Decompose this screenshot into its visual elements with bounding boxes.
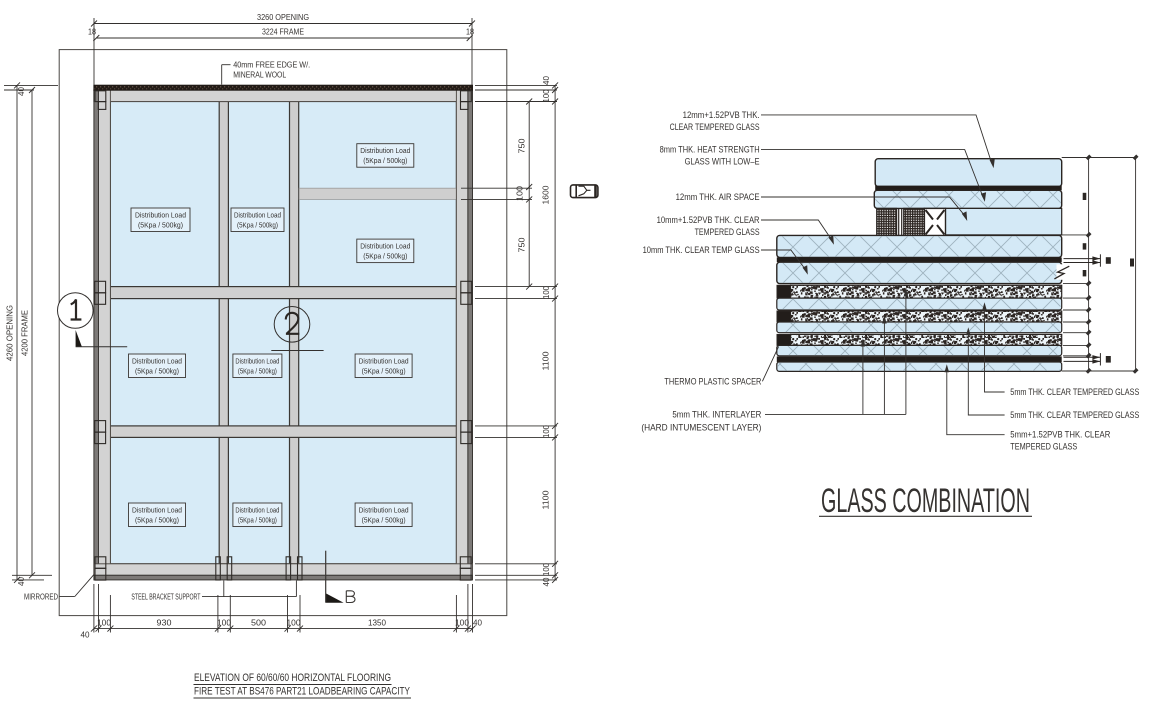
svg-text:5mm+1.52PVB THK. CLEAR: 5mm+1.52PVB THK. CLEAR <box>1010 430 1110 441</box>
svg-text:STEEL BRACKET SUPPORT: STEEL BRACKET SUPPORT <box>131 593 200 602</box>
svg-text:40: 40 <box>81 630 90 640</box>
svg-text:CLEAR TEMPERED GLASS: CLEAR TEMPERED GLASS <box>670 122 760 133</box>
svg-text:5mm THK. CLEAR TEMPERED GLASS: 5mm THK. CLEAR TEMPERED GLASS <box>1010 387 1139 398</box>
svg-text:(5Kpa / 500kg): (5Kpa / 500kg) <box>362 516 406 525</box>
svg-text:18: 18 <box>88 28 96 37</box>
svg-text:3224 FRAME: 3224 FRAME <box>262 27 304 37</box>
svg-text:(5Kpa / 500kg): (5Kpa / 500kg) <box>135 367 179 376</box>
svg-text:TEMPERED GLASS: TEMPERED GLASS <box>1010 442 1077 453</box>
svg-text:TEMPERED GLASS: TEMPERED GLASS <box>695 227 760 238</box>
svg-text:4200 FRAME: 4200 FRAME <box>20 310 30 356</box>
svg-text:Distribution Load: Distribution Load <box>360 146 410 155</box>
svg-text:100: 100 <box>542 424 551 438</box>
svg-text:40: 40 <box>17 86 26 96</box>
svg-text:100: 100 <box>97 618 111 628</box>
svg-text:(5Kpa / 500kg): (5Kpa / 500kg) <box>138 221 183 230</box>
svg-text:40mm FREE EDGE W/.: 40mm FREE EDGE W/. <box>233 60 310 70</box>
svg-text:12mm THK. AIR SPACE: 12mm THK. AIR SPACE <box>676 192 760 203</box>
svg-text:MIRRORED: MIRRORED <box>24 593 58 602</box>
svg-text:THERMO PLASTIC SPACER: THERMO PLASTIC SPACER <box>664 376 761 387</box>
svg-text:500: 500 <box>251 618 266 628</box>
svg-text:(5Kpa / 500kg): (5Kpa / 500kg) <box>363 252 407 261</box>
svg-text:Distribution Load: Distribution Load <box>359 506 409 515</box>
svg-text:Distribution Load: Distribution Load <box>234 211 281 220</box>
svg-text:Distribution Load: Distribution Load <box>235 359 279 366</box>
svg-text:100: 100 <box>287 618 301 628</box>
svg-text:12mm+1.52PVB THK.: 12mm+1.52PVB THK. <box>683 110 760 121</box>
svg-text:1600: 1600 <box>541 185 551 204</box>
svg-text:(5Kpa / 500kg): (5Kpa / 500kg) <box>135 516 179 525</box>
svg-text:750: 750 <box>517 237 527 252</box>
svg-text:3260 OPENING: 3260 OPENING <box>257 12 309 22</box>
svg-text:5mm THK. INTERLAYER: 5mm THK. INTERLAYER <box>672 409 761 420</box>
svg-text:(5Kpa / 500kg): (5Kpa / 500kg) <box>362 367 406 376</box>
svg-text:10mm+1.52PVB THK. CLEAR: 10mm+1.52PVB THK. CLEAR <box>657 215 760 226</box>
svg-text:Distribution Load: Distribution Load <box>135 211 186 220</box>
svg-text:1100: 1100 <box>541 351 551 370</box>
svg-text:Distribution Load: Distribution Load <box>360 242 410 251</box>
svg-text:(5Kpa / 500kg): (5Kpa / 500kg) <box>363 156 407 165</box>
svg-text:100: 100 <box>542 285 551 299</box>
svg-text:100: 100 <box>515 186 525 201</box>
svg-text:GLASS COMBINATION: GLASS COMBINATION <box>821 482 1030 520</box>
svg-text:4260 OPENING: 4260 OPENING <box>5 305 15 361</box>
svg-text:100: 100 <box>217 618 231 628</box>
svg-text:40: 40 <box>542 577 551 587</box>
svg-text:Distribution Load: Distribution Load <box>235 508 279 515</box>
svg-text:40: 40 <box>473 618 482 628</box>
svg-text:750: 750 <box>517 138 527 153</box>
svg-text:8mm THK. HEAT STRENGTH: 8mm THK. HEAT STRENGTH <box>660 145 760 156</box>
svg-text:100: 100 <box>455 618 469 628</box>
svg-text:(5Kpa / 500kg): (5Kpa / 500kg) <box>237 221 278 230</box>
svg-text:100: 100 <box>542 89 551 103</box>
svg-text:GLASS WITH LOW–E: GLASS WITH LOW–E <box>685 157 760 168</box>
svg-text:1100: 1100 <box>541 490 551 509</box>
svg-text:930: 930 <box>157 618 172 628</box>
svg-text:40: 40 <box>542 75 551 85</box>
svg-text:MINERAL WOOL: MINERAL WOOL <box>233 70 286 80</box>
svg-text:18: 18 <box>466 28 474 37</box>
svg-text:40: 40 <box>17 576 26 586</box>
svg-text:(HARD INTUMESCENT LAYER): (HARD INTUMESCENT LAYER) <box>641 423 761 434</box>
svg-text:5mm THK. CLEAR TEMPERED GLASS: 5mm THK. CLEAR TEMPERED GLASS <box>1010 410 1139 421</box>
svg-text:1350: 1350 <box>368 618 386 628</box>
svg-text:FIRE TEST AT BS476 PART21 LOAD: FIRE TEST AT BS476 PART21 LOADBEARING CA… <box>194 686 410 698</box>
svg-text:Distribution Load: Distribution Load <box>132 506 182 515</box>
svg-text:Distribution Load: Distribution Load <box>359 357 409 366</box>
svg-text:Distribution Load: Distribution Load <box>132 357 182 366</box>
svg-text:100: 100 <box>542 562 551 576</box>
svg-text:(5Kpa / 500kg): (5Kpa / 500kg) <box>238 518 277 525</box>
svg-text:(5Kpa / 500kg): (5Kpa / 500kg) <box>238 369 277 376</box>
svg-text:10mm THK. CLEAR TEMP GLASS: 10mm THK. CLEAR TEMP GLASS <box>643 245 760 256</box>
svg-text:ELEVATION OF 60/60/60 HORIZONT: ELEVATION OF 60/60/60 HORIZONTAL FLOORIN… <box>194 672 391 684</box>
